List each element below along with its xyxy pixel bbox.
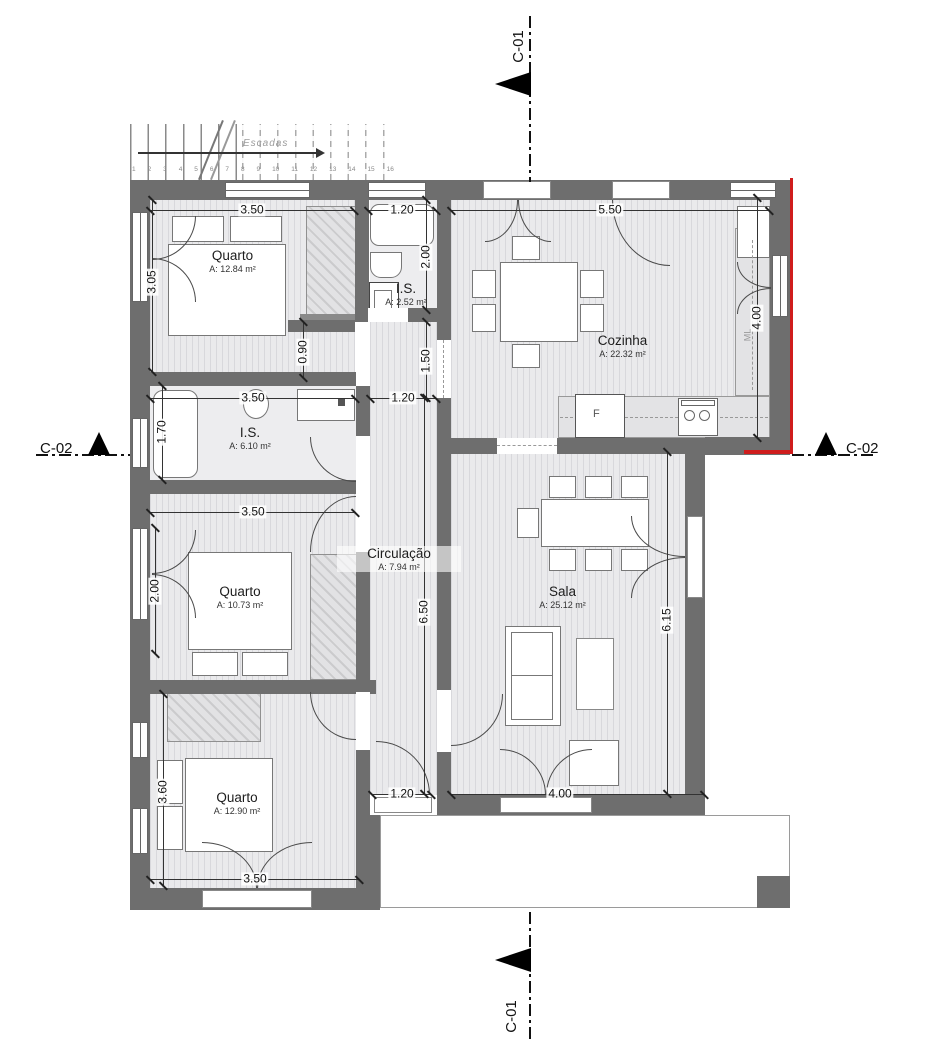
room-label-is1: I.S. A: 2.52 m² [375, 281, 437, 307]
wall-int [437, 200, 451, 308]
vanity-counter-is2 [297, 389, 355, 421]
door-opening-quarto2 [356, 494, 370, 552]
stove-burner [684, 410, 695, 421]
dim-q1-width: 3.50 [238, 203, 265, 216]
dim-q2-width: 3.50 [239, 505, 266, 518]
section-line-c01-bottom [529, 912, 531, 1042]
dim-is1-width: 1.20 [388, 203, 415, 216]
stairs-direction-arrow [316, 148, 325, 158]
tread-number: 8 [241, 166, 245, 173]
floor-plan: 3.50 1.20 5.50 3.50 1.20 3.50 1.20 4.00 … [0, 0, 931, 1059]
tread-number: 1 [132, 166, 136, 173]
tread-number: 4 [179, 166, 183, 173]
washer-label: ML [738, 320, 756, 350]
chair [512, 236, 540, 260]
chair [512, 344, 540, 368]
wall-int [437, 308, 451, 340]
room-label-is2: I.S. A: 6.10 m² [200, 425, 300, 451]
room-area: A: 12.84 m² [209, 264, 256, 274]
wall-sala-right [685, 452, 705, 815]
dim-sala-width: 4.00 [546, 787, 573, 800]
stairs-direction-line [138, 152, 320, 154]
tread-number: 10 [272, 166, 279, 173]
room-name: Quarto [216, 790, 257, 805]
chair [549, 549, 576, 571]
door-opening-quarto3 [356, 692, 370, 750]
tread-number: 16 [387, 166, 394, 173]
room-label-quarto2: Quarto A: 10.73 m² [170, 584, 310, 610]
room-name: Circulação [367, 546, 431, 561]
chair [585, 549, 612, 571]
dim-is2-width: 3.50 [239, 391, 266, 404]
tread-number: 3 [163, 166, 167, 173]
wall-int [437, 752, 451, 795]
stove-knobs [681, 400, 715, 406]
dim-passage: 1.50 [419, 347, 432, 374]
wall-int [288, 320, 355, 332]
wall-int [356, 386, 370, 436]
dim-coz-width: 5.50 [596, 203, 623, 216]
room-area: A: 7.94 m² [378, 562, 420, 572]
tread-number: 9 [257, 166, 261, 173]
french-door-quarto3-bottom [202, 890, 312, 908]
stair-tread-numbers: 1 2 3 4 5 6 7 8 9 10 11 12 13 14 15 16 [132, 166, 394, 173]
chair [580, 304, 604, 332]
bed-pillow [242, 652, 288, 676]
dim-is2-height: 1.70 [155, 418, 168, 445]
room-name: I.S. [396, 281, 416, 296]
chair [585, 476, 612, 498]
tread-number: 5 [194, 166, 198, 173]
window-kitchen-right [772, 255, 788, 317]
window-kitchen-top [730, 182, 776, 198]
section-label-c02-left: C-02 [40, 440, 73, 457]
window-quarto3-left2 [132, 808, 148, 854]
wall-int [355, 200, 369, 322]
dim-q3-width: 3.50 [241, 872, 268, 885]
section-label-c01-top: C-01 [505, 22, 531, 70]
room-area: A: 10.73 m² [217, 600, 264, 610]
dim-wardrobe: 0.90 [296, 338, 309, 365]
section-arrow-c02-left [88, 432, 110, 455]
dim-q1-height: 3.05 [145, 268, 158, 295]
room-label-quarto3: Quarto A: 12.90 m² [167, 790, 307, 816]
tread-number: 14 [348, 166, 355, 173]
chair [517, 508, 539, 538]
chair [472, 270, 496, 298]
dim-hall-top: 1.20 [389, 391, 416, 404]
window-quarto2-left [132, 528, 148, 620]
terrace [380, 815, 790, 908]
dim-hall-bottom: 1.20 [388, 787, 415, 800]
opening-dashed [443, 340, 444, 398]
entry-door-kitchen [612, 181, 670, 199]
bed-pillow [192, 652, 238, 676]
section-label-c02-right: C-02 [846, 440, 879, 457]
fridge-label: F [593, 408, 600, 420]
sofa-seat [511, 632, 553, 720]
chair [472, 304, 496, 332]
sofa-divider [512, 675, 552, 676]
tread-number: 15 [367, 166, 374, 173]
wall-int [150, 480, 356, 494]
tread-number: 13 [329, 166, 336, 173]
opening-dashed [497, 445, 557, 446]
wardrobe-quarto2 [310, 554, 358, 680]
window-quarto1-top [225, 182, 310, 198]
door-opening-is1 [368, 308, 408, 322]
opening-kitchen-corridor [437, 340, 451, 398]
bed-pillow [230, 216, 282, 242]
tread-number: 12 [310, 166, 317, 173]
wardrobe-quarto3 [167, 692, 261, 742]
dim-is1-height: 2.00 [419, 243, 432, 270]
toilet-is1 [370, 252, 402, 278]
room-label-circulacao: Circulação A: 7.94 m² [337, 546, 461, 572]
door-opening-sala [437, 690, 451, 752]
wall-int [150, 372, 356, 386]
vanity-tap [338, 399, 345, 406]
wall-int [356, 748, 370, 888]
room-label-sala: Sala A: 25.12 m² [500, 584, 625, 610]
chair [621, 549, 648, 571]
room-name: Quarto [212, 248, 253, 263]
dim-q2-height: 2.00 [148, 577, 161, 604]
room-area: A: 2.52 m² [385, 297, 427, 307]
section-label-c01-bottom: C-01 [498, 986, 524, 1046]
room-area: A: 22.32 m² [599, 349, 646, 359]
pantry-unit [737, 206, 770, 258]
window-is1-top [368, 182, 426, 198]
red-marker-bottom [744, 450, 790, 454]
fridge [575, 394, 625, 438]
room-area: A: 6.10 m² [229, 441, 271, 451]
wall-exterior-right-kitchen [770, 180, 790, 455]
dim-corridor: 6.50 [417, 598, 430, 625]
chair [621, 476, 648, 498]
opening-kitchen-sala [497, 438, 557, 454]
stairs-label: Escadas [243, 138, 288, 149]
door-opening-is2 [356, 436, 370, 482]
wall-int [557, 438, 705, 454]
tread-number: 7 [225, 166, 229, 173]
window-is2-left [132, 418, 148, 468]
chair [580, 270, 604, 298]
tread-number: 2 [148, 166, 152, 173]
entry-door-kitchen-french [483, 181, 551, 199]
tread-number: 6 [210, 166, 214, 173]
section-arrow-c02-right [815, 432, 837, 455]
room-label-quarto1: Quarto A: 12.84 m² [160, 248, 305, 274]
coffee-table [576, 638, 614, 710]
terrace-pillar [757, 876, 790, 908]
wall-int [437, 398, 451, 438]
room-name: I.S. [240, 425, 260, 440]
room-name: Cozinha [598, 333, 648, 348]
red-marker-right-wall [790, 178, 793, 454]
stove-burner [699, 410, 710, 421]
room-label-cozinha: Cozinha A: 22.32 m² [560, 333, 685, 359]
dim-sala-height: 6.15 [660, 606, 673, 633]
wardrobe-quarto1 [306, 206, 357, 320]
tread-number: 11 [291, 166, 298, 173]
room-area: A: 12.90 m² [214, 806, 261, 816]
french-door-sala-right [687, 516, 703, 598]
kitchen-table [500, 262, 578, 342]
room-name: Sala [549, 584, 576, 599]
section-arrow-c01-top [495, 72, 531, 96]
room-name: Quarto [219, 584, 260, 599]
window-quarto3-left [132, 722, 148, 758]
room-area: A: 25.12 m² [539, 600, 586, 610]
chair [549, 476, 576, 498]
section-arrow-c01-bottom [495, 948, 531, 972]
dim-line [424, 398, 425, 794]
